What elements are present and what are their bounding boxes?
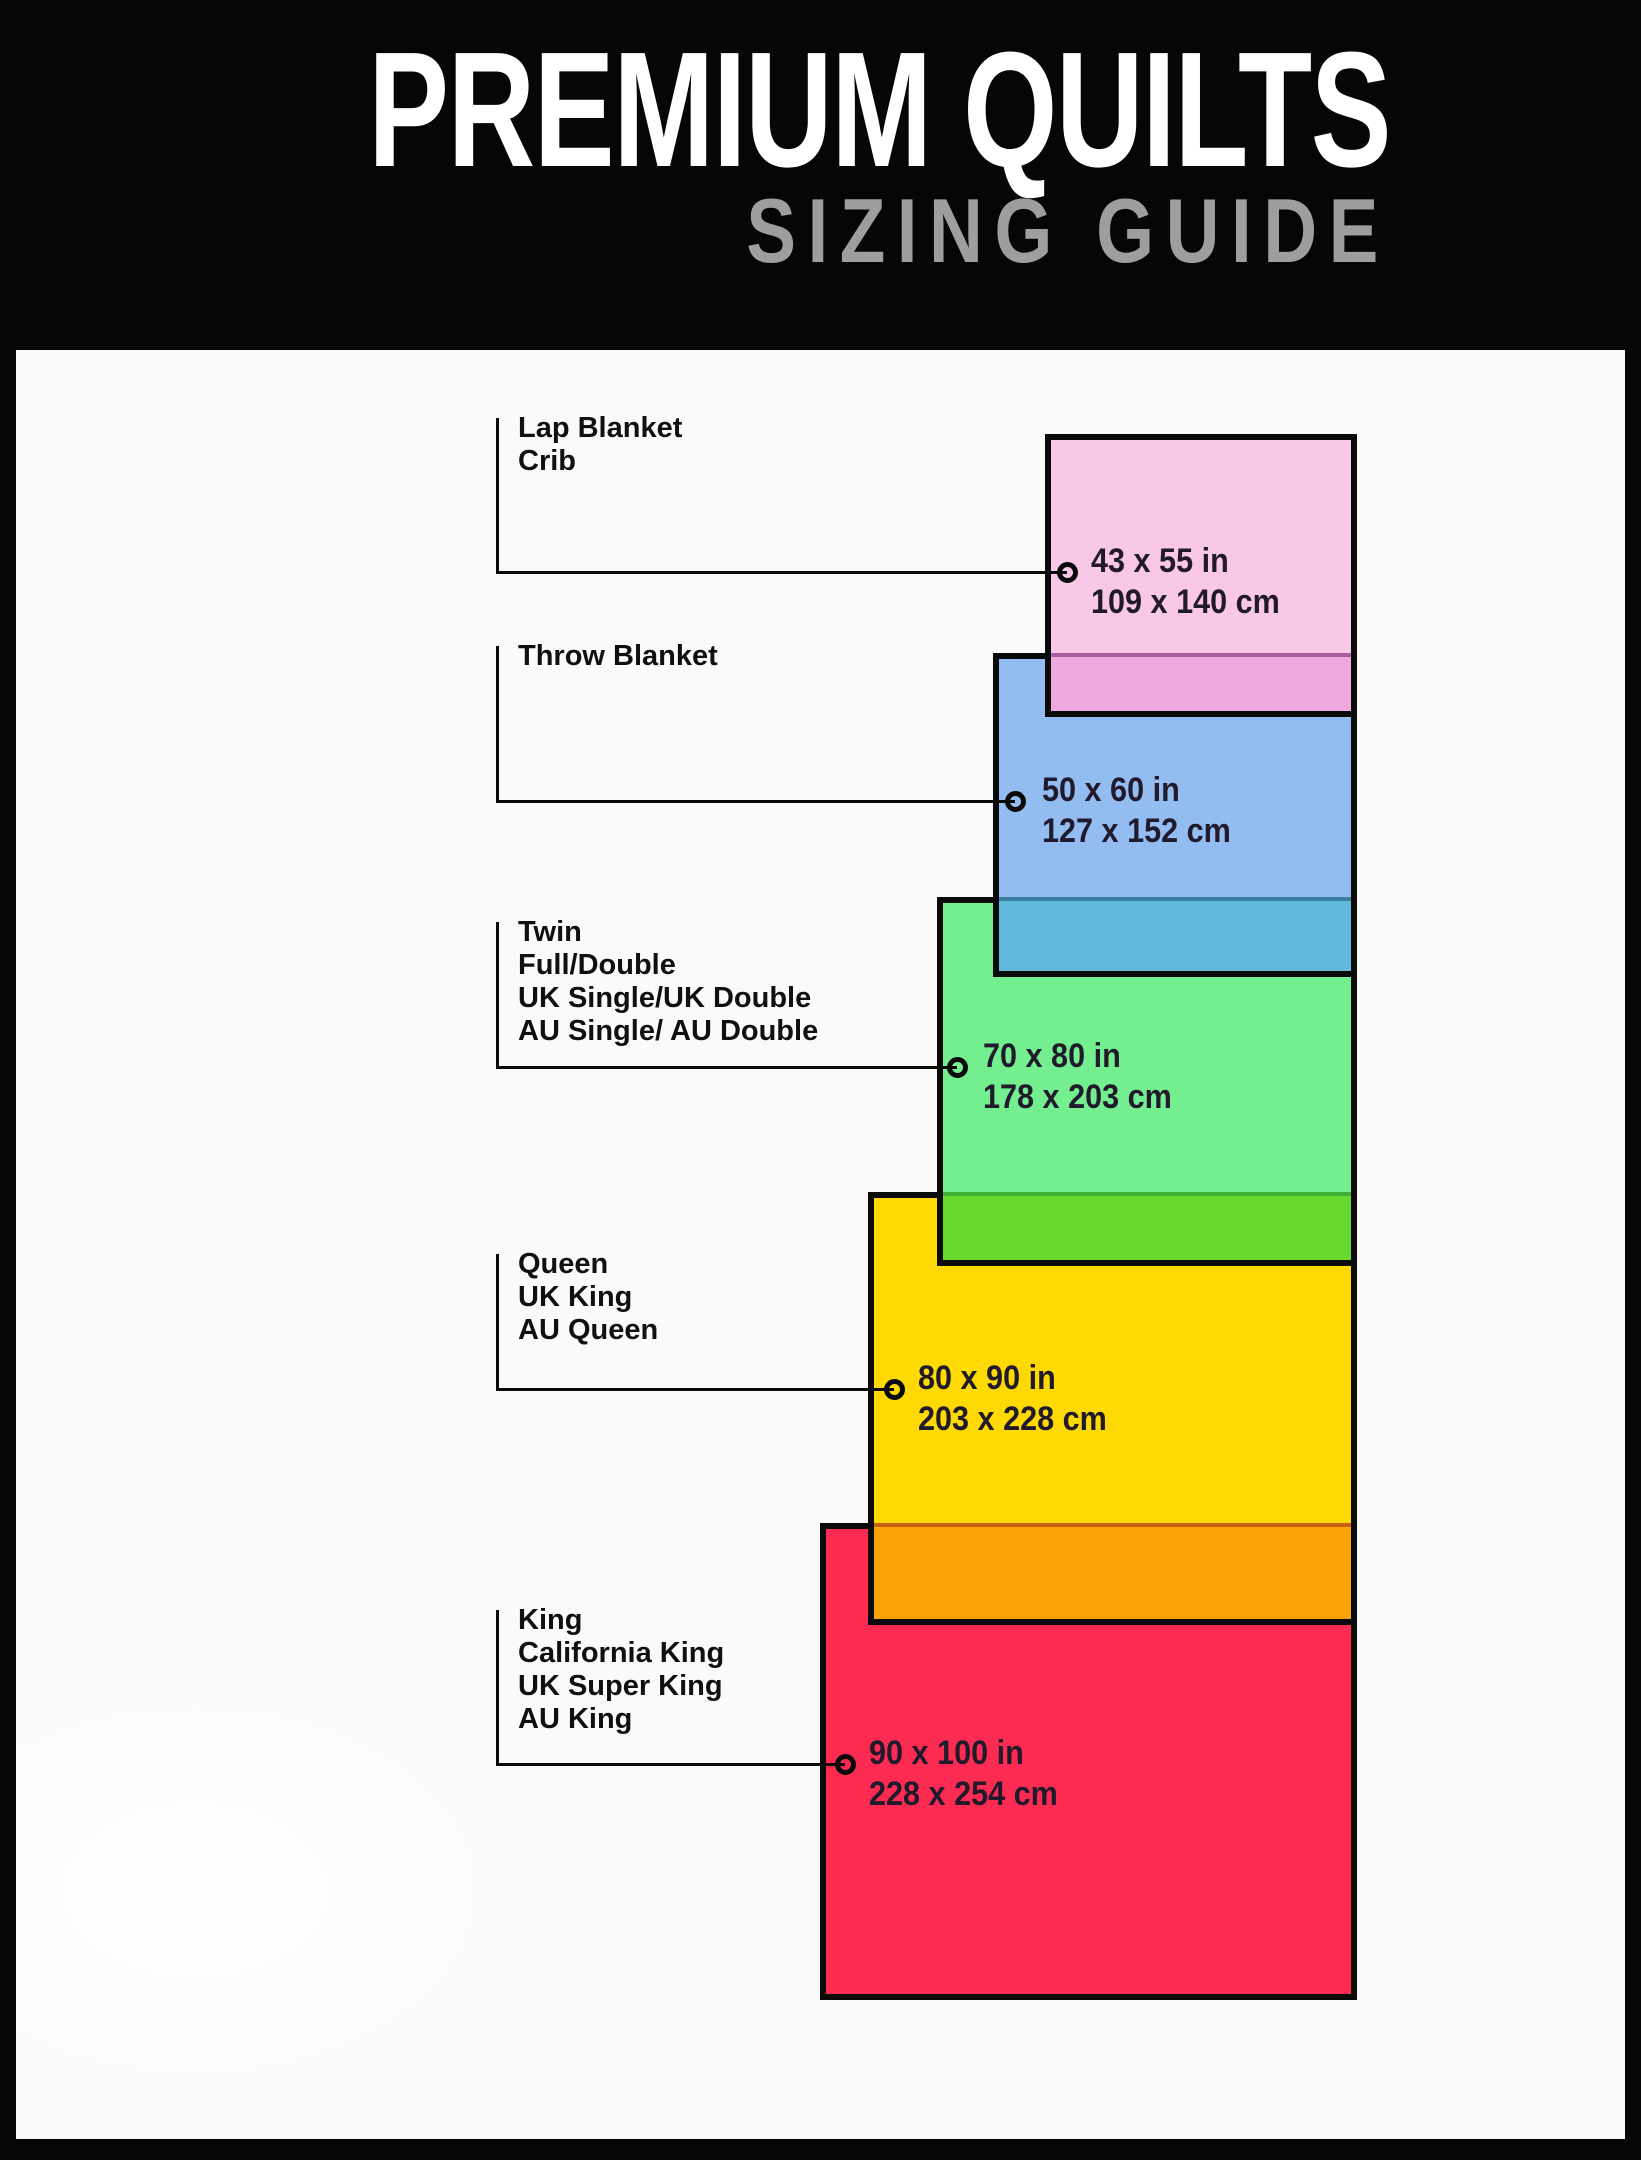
- connector-vline-queen: [496, 1254, 499, 1391]
- label-line: UK Super King: [518, 1670, 724, 1703]
- connector-vline-king: [496, 1610, 499, 1766]
- overlap-twin-queen: [943, 1192, 1351, 1260]
- dims-cm: 127 x 152 cm: [1042, 811, 1231, 852]
- label-line: Crib: [518, 445, 682, 478]
- page-title: PREMIUM QUILTS: [368, 30, 1390, 190]
- label-throw-blanket: Throw Blanket: [518, 640, 718, 673]
- connector-dot-icon: [1057, 562, 1078, 583]
- dims-inches: 80 x 90 in: [918, 1358, 1107, 1399]
- infographic: PREMIUM QUILTS SIZING GUIDE Lap Blanket …: [0, 0, 1641, 2160]
- connector-hline-queen: [496, 1388, 894, 1391]
- overlap-throw-twin: [999, 897, 1351, 971]
- connector-hline-throw: [496, 800, 1015, 803]
- dims-cm: 109 x 140 cm: [1091, 582, 1280, 623]
- connector-vline-lap: [496, 418, 499, 574]
- label-lap-blanket: Lap Blanket Crib: [518, 412, 682, 478]
- label-line: AU King: [518, 1703, 724, 1736]
- dims-cm: 203 x 228 cm: [918, 1399, 1107, 1440]
- header: PREMIUM QUILTS SIZING GUIDE: [0, 0, 1641, 350]
- label-twin: Twin Full/Double UK Single/UK Double AU …: [518, 916, 818, 1048]
- connector-dot-icon: [884, 1379, 905, 1400]
- dims-twin: 70 x 80 in 178 x 203 cm: [983, 1036, 1172, 1118]
- label-line: UK Single/UK Double: [518, 982, 818, 1015]
- header-text: PREMIUM QUILTS SIZING GUIDE: [9, 30, 1390, 280]
- label-line: Queen: [518, 1248, 658, 1281]
- dims-inches: 50 x 60 in: [1042, 770, 1231, 811]
- connector-hline-twin: [496, 1066, 957, 1069]
- label-king: King California King UK Super King AU Ki…: [518, 1604, 724, 1736]
- dims-cm: 228 x 254 cm: [869, 1774, 1058, 1815]
- overlap-queen-king: [874, 1523, 1351, 1619]
- label-queen: Queen UK King AU Queen: [518, 1248, 658, 1347]
- connector-hline-king: [496, 1763, 845, 1766]
- dims-throw: 50 x 60 in 127 x 152 cm: [1042, 770, 1231, 852]
- overlap-lap-throw: [1051, 653, 1351, 711]
- label-line: AU Queen: [518, 1314, 658, 1347]
- label-line: AU Single/ AU Double: [518, 1015, 818, 1048]
- label-line: King: [518, 1604, 724, 1637]
- connector-vline-twin: [496, 922, 499, 1068]
- dims-inches: 43 x 55 in: [1091, 541, 1280, 582]
- connector-vline-throw: [496, 646, 499, 803]
- label-line: Lap Blanket: [518, 412, 682, 445]
- connector-dot-icon: [1005, 791, 1026, 812]
- dims-inches: 90 x 100 in: [869, 1733, 1058, 1774]
- label-line: California King: [518, 1637, 724, 1670]
- dims-cm: 178 x 203 cm: [983, 1077, 1172, 1118]
- label-line: Twin: [518, 916, 818, 949]
- label-line: Throw Blanket: [518, 640, 718, 673]
- dims-lap: 43 x 55 in 109 x 140 cm: [1091, 541, 1280, 623]
- label-line: UK King: [518, 1281, 658, 1314]
- connector-dot-icon: [835, 1754, 856, 1775]
- connector-dot-icon: [947, 1057, 968, 1078]
- connector-hline-lap: [496, 571, 1067, 574]
- dims-inches: 70 x 80 in: [983, 1036, 1172, 1077]
- page-subtitle: SIZING GUIDE: [746, 184, 1390, 280]
- dims-king: 90 x 100 in 228 x 254 cm: [869, 1733, 1058, 1815]
- dims-queen: 80 x 90 in 203 x 228 cm: [918, 1358, 1107, 1440]
- label-line: Full/Double: [518, 949, 818, 982]
